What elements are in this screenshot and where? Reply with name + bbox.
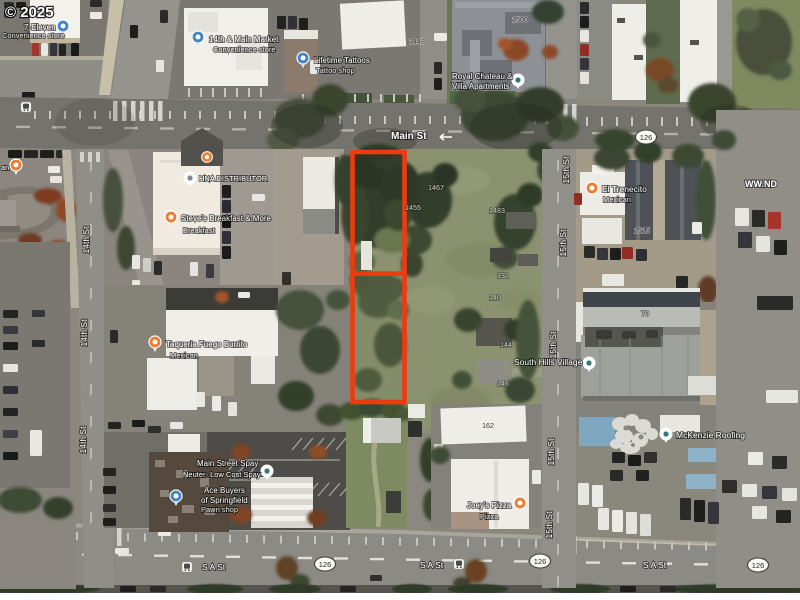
svg-text:© 2025: © 2025 — [5, 4, 54, 21]
svg-text:140: 140 — [489, 293, 501, 302]
svg-text:Neuter- Low Cost Spay: Neuter- Low Cost Spay — [183, 470, 261, 479]
svg-text:126: 126 — [640, 133, 653, 142]
svg-text:126: 126 — [319, 560, 332, 569]
svg-text:Mexican: Mexican — [170, 351, 198, 360]
svg-text:14th & Main Market: 14th & Main Market — [209, 35, 279, 44]
svg-text:126: 126 — [534, 557, 547, 566]
svg-text:14th St: 14th St — [78, 426, 88, 454]
svg-text:132: 132 — [497, 271, 509, 280]
svg-text:146: 146 — [497, 379, 509, 388]
svg-text:15th St: 15th St — [546, 438, 556, 466]
svg-text:1448: 1448 — [409, 37, 425, 46]
svg-text:70: 70 — [641, 309, 649, 318]
svg-text:Steve's Breakfast & More: Steve's Breakfast & More — [181, 214, 272, 223]
svg-text:S A St: S A St — [420, 560, 444, 570]
svg-text:Breakfast: Breakfast — [183, 226, 216, 235]
svg-text:Lifetime Tattoos: Lifetime Tattoos — [314, 56, 370, 65]
svg-text:S A St: S A St — [202, 562, 226, 572]
svg-text:1467: 1467 — [428, 183, 444, 192]
svg-text:15th St: 15th St — [561, 156, 571, 184]
svg-text:15th St: 15th St — [558, 229, 568, 257]
svg-text:162: 162 — [482, 421, 494, 430]
svg-text:Main St: Main St — [391, 131, 427, 142]
svg-text:an: an — [1, 163, 9, 172]
svg-text:1483: 1483 — [489, 206, 505, 215]
svg-text:Taqueria Fuego Burrito: Taqueria Fuego Burrito — [166, 340, 248, 349]
svg-text:Pawn shop: Pawn shop — [201, 505, 238, 514]
svg-text:S A St: S A St — [643, 560, 667, 570]
svg-text:McKenzie Roofing: McKenzie Roofing — [676, 430, 745, 440]
svg-text:1515: 1515 — [634, 226, 650, 235]
svg-text:Villa Apartments: Villa Apartments — [452, 82, 510, 91]
svg-text:1500: 1500 — [512, 15, 528, 24]
svg-text:14th St: 14th St — [81, 226, 91, 254]
svg-text:Joey's Pizza: Joey's Pizza — [467, 501, 512, 510]
svg-text:Ace Buyers: Ace Buyers — [204, 486, 245, 495]
svg-text:El Trenecito: El Trenecito — [602, 184, 647, 194]
svg-text:Convenience store: Convenience store — [213, 45, 276, 54]
svg-text:126: 126 — [752, 561, 765, 570]
svg-text:Convenience store: Convenience store — [2, 31, 65, 40]
svg-text:HNA DISTRIBUTOR: HNA DISTRIBUTOR — [199, 174, 268, 183]
svg-text:Mexican: Mexican — [603, 195, 631, 204]
svg-text:Main Street Spay: Main Street Spay — [197, 459, 258, 468]
svg-text:WW.ND: WW.ND — [745, 179, 777, 189]
svg-text:15th St: 15th St — [544, 511, 554, 539]
svg-text:Tattoo shop: Tattoo shop — [316, 66, 355, 75]
svg-text:14th St: 14th St — [79, 319, 89, 347]
svg-text:of Springfield: of Springfield — [201, 496, 248, 505]
svg-text:144: 144 — [500, 340, 512, 349]
svg-text:Pizza: Pizza — [480, 512, 499, 521]
svg-text:1455: 1455 — [405, 203, 421, 212]
svg-text:15th St: 15th St — [548, 331, 558, 359]
svg-text:Royal Chateau &: Royal Chateau & — [452, 72, 513, 81]
